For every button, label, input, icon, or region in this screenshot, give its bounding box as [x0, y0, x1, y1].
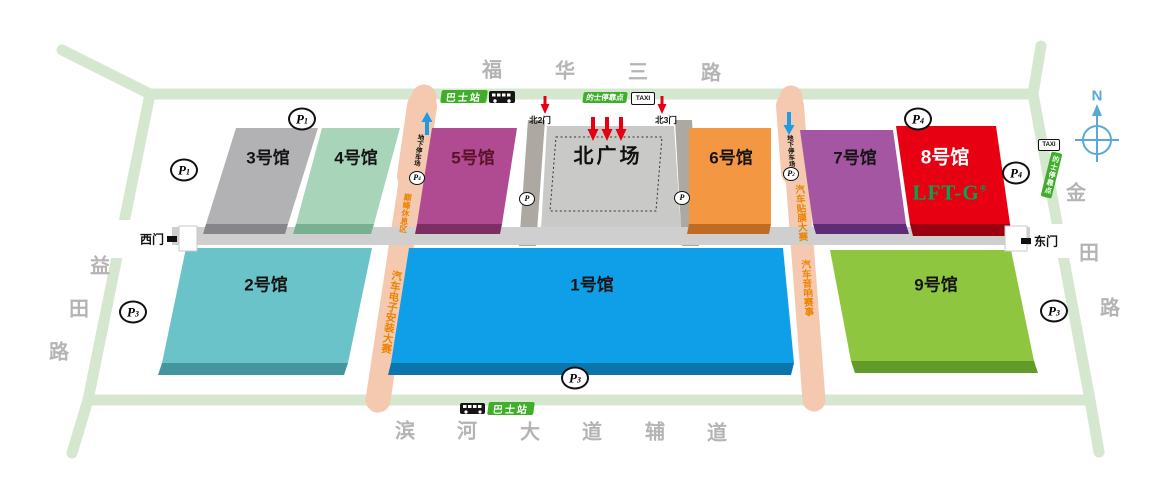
parking-marker-p4: P4: [1002, 162, 1030, 185]
road-left-char: 益: [90, 250, 110, 279]
road-top-char: 三: [628, 56, 648, 85]
hall-2-shape: [162, 248, 372, 363]
hall-6-side: [687, 224, 771, 234]
parking-marker-underground-west: P4: [409, 171, 425, 185]
north-gate-2-label: 北2门: [529, 114, 551, 126]
hall-5-label: 5号馆: [451, 144, 494, 169]
hall-1-label: 1号馆: [570, 271, 613, 296]
road-left-char: 路: [49, 336, 69, 365]
hall-6-label: 6号馆: [709, 144, 752, 169]
hall-8-brand-logo: LFT-G®: [913, 181, 988, 206]
road-bottom-char: 道: [582, 416, 602, 445]
bus-station-badge-bottom: 巴士站: [487, 402, 535, 415]
taxi-sign-top: TAXI: [631, 92, 655, 105]
parking-marker-p3: P3: [119, 301, 147, 324]
hall-5-side: [415, 224, 502, 234]
bus-icon-top: [489, 91, 515, 103]
hall-2-side: [158, 363, 348, 375]
taxi-stop-badge-top: 的士停靠点: [582, 92, 628, 103]
parking-marker-p4: P4: [904, 108, 932, 131]
hall-4-side: [293, 224, 374, 234]
hall-3-side: [203, 224, 288, 234]
underground-parking-label-east: 地下停车场: [785, 135, 794, 168]
hall-7-side: [813, 224, 909, 234]
road-top-char: 华: [555, 55, 575, 84]
west-gate-label: 西门: [140, 231, 164, 248]
road-right-char: 田: [1079, 237, 1099, 266]
east-gate-marker: [1021, 238, 1031, 244]
road-top-char: 福: [482, 54, 502, 83]
parking-marker-p3: P3: [1040, 300, 1068, 323]
exhibition-center-map: 福 华 三 路 滨 河 大 道 辅 道 益 田 路 金 田 路 3号馆 4号馆 …: [0, 0, 1173, 500]
hall-3-label: 3号馆: [246, 144, 289, 169]
bus-icon-bottom: [460, 403, 485, 414]
hall-9-side: [851, 361, 1038, 373]
road-bottom-char: 大: [520, 416, 540, 445]
hall-8-label: 8号馆: [921, 143, 970, 170]
east-gate-label: 东门: [1034, 233, 1058, 250]
road-right-char: 路: [1100, 292, 1120, 321]
taxi-sign-east: TAXI: [1038, 139, 1060, 151]
hall-7-label: 7号馆: [833, 144, 876, 169]
parking-marker-p1: P1: [288, 108, 316, 131]
compass-icon: [1075, 104, 1119, 162]
compass-north-label: N: [1092, 88, 1103, 105]
west-gate-marker: [167, 236, 177, 242]
hall-9-shape: [830, 250, 1034, 361]
hall-1-shape: [391, 248, 794, 363]
parking-marker-walkway-left: P: [519, 192, 535, 206]
hall-6-shape: [689, 128, 771, 224]
hall-5-shape: [417, 128, 517, 224]
north-plaza-label: 北广场: [574, 140, 643, 169]
brand-registered-mark: ®: [980, 184, 988, 194]
west-gate-platform: [179, 226, 197, 251]
hall-4-label: 4号馆: [334, 144, 377, 169]
road-right-char: 金: [1066, 177, 1086, 206]
parking-marker-p1: P1: [170, 159, 198, 182]
bus-station-badge-top: 巴士站: [440, 90, 488, 103]
road-top-char: 路: [701, 57, 721, 86]
parking-marker-p3: P3: [561, 367, 589, 390]
hall-8-side: [910, 224, 1013, 236]
parking-marker-walkway-right: P: [674, 191, 690, 205]
parking-marker-underground-east: P2: [783, 167, 799, 181]
hall-8-shape: [896, 126, 1010, 224]
hall-2-label: 2号馆: [244, 271, 287, 296]
road-left-char: 田: [69, 293, 89, 322]
road-bottom-char: 滨: [395, 415, 415, 444]
north-gate-3-label: 北3门: [655, 114, 677, 126]
road-bottom-char: 道: [707, 417, 727, 446]
hall-9-label: 9号馆: [914, 271, 957, 296]
road-bottom-char: 辅: [645, 416, 665, 445]
hall-1-side: [388, 363, 794, 375]
road-bottom-char: 河: [457, 415, 477, 444]
